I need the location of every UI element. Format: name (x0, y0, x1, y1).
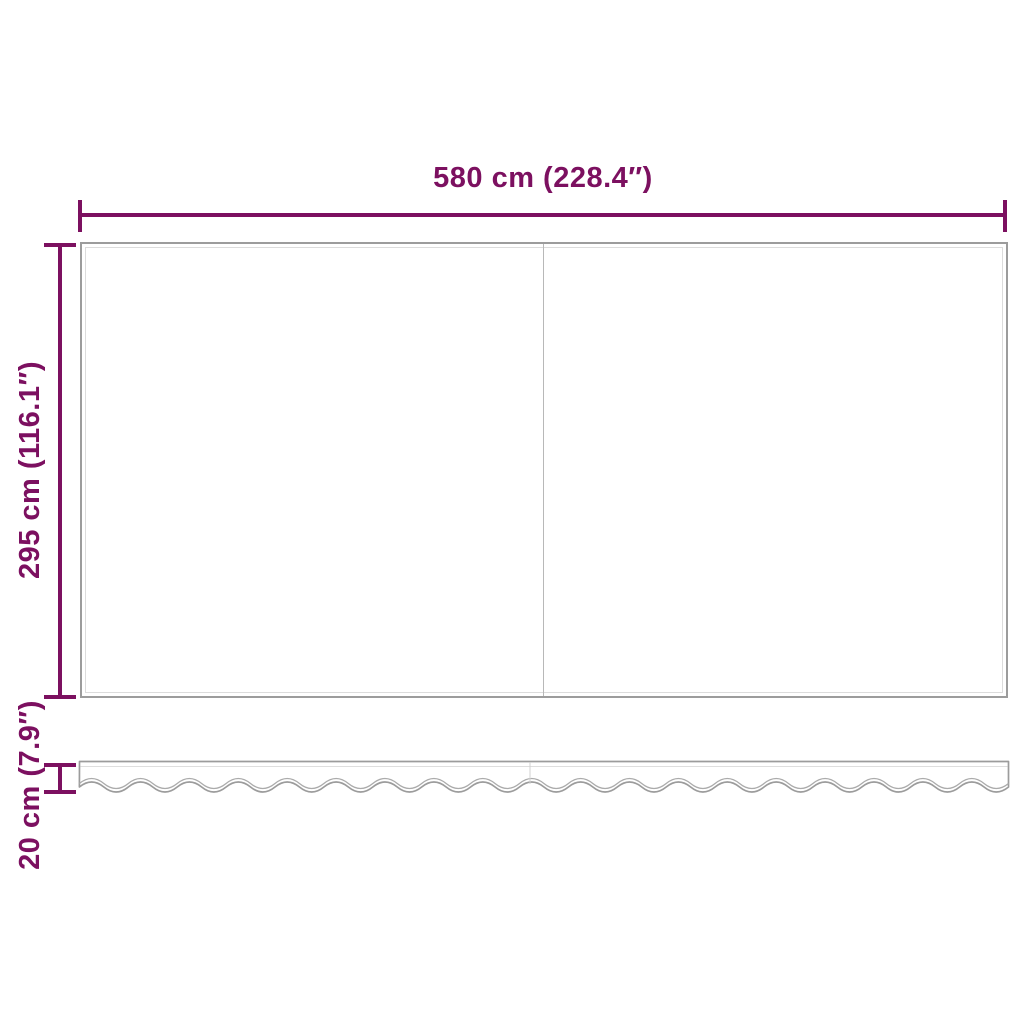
height-dimension-label: 295 cm (116.1″) (13, 242, 47, 698)
valance-dimension-cap-bottom (44, 790, 76, 794)
valance-dimension-cap-top (44, 763, 76, 767)
height-dimension-cap-bottom (44, 695, 76, 699)
width-dimension-tick-left (78, 200, 82, 232)
valance-dimension-label: 20 cm (7.9″) (13, 695, 47, 875)
awning-fabric-panel (80, 242, 1008, 698)
fabric-hem-line (85, 247, 1003, 693)
width-dimension-line (80, 213, 1006, 217)
height-dimension-line (58, 243, 62, 699)
height-dimension-cap-top (44, 243, 76, 247)
width-dimension-tick-right (1003, 200, 1007, 232)
valance-strip (78, 760, 1010, 810)
diagram-canvas: 580 cm (228.4″) 295 cm (116.1″) 20 cm (7… (0, 0, 1024, 1024)
width-dimension-label: 580 cm (228.4″) (333, 161, 753, 195)
fabric-center-seam (543, 244, 544, 696)
